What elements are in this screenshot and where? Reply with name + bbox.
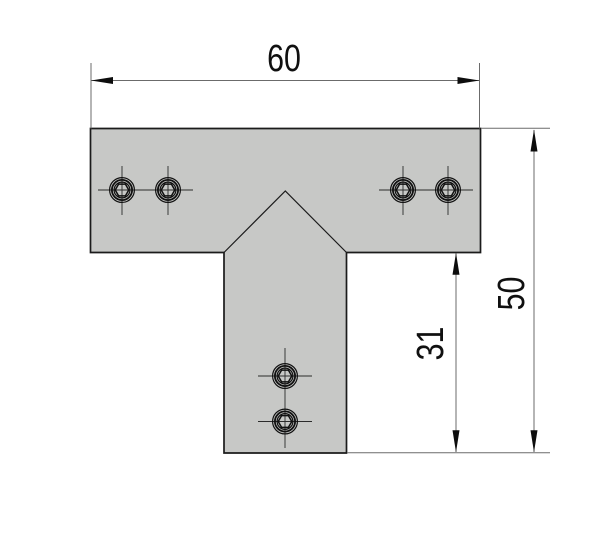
dimension-height-label: 50 xyxy=(491,277,533,311)
technical-drawing-canvas: 60 50 31 xyxy=(0,0,600,535)
arrowhead-up xyxy=(453,253,460,275)
t-plate-outline xyxy=(91,129,481,454)
dimension-stem-label: 31 xyxy=(410,327,452,361)
arrowhead-up xyxy=(531,130,538,152)
dimension-width: 60 xyxy=(91,38,480,128)
drawing-sheet: 60 50 31 xyxy=(0,0,600,535)
dimension-stem: 31 xyxy=(410,253,459,452)
arrowhead-down xyxy=(453,430,460,452)
dimension-width-label: 60 xyxy=(267,38,301,80)
arrowhead-down xyxy=(531,430,538,452)
arrowhead-right xyxy=(458,77,480,84)
arrowhead-left xyxy=(91,77,113,84)
